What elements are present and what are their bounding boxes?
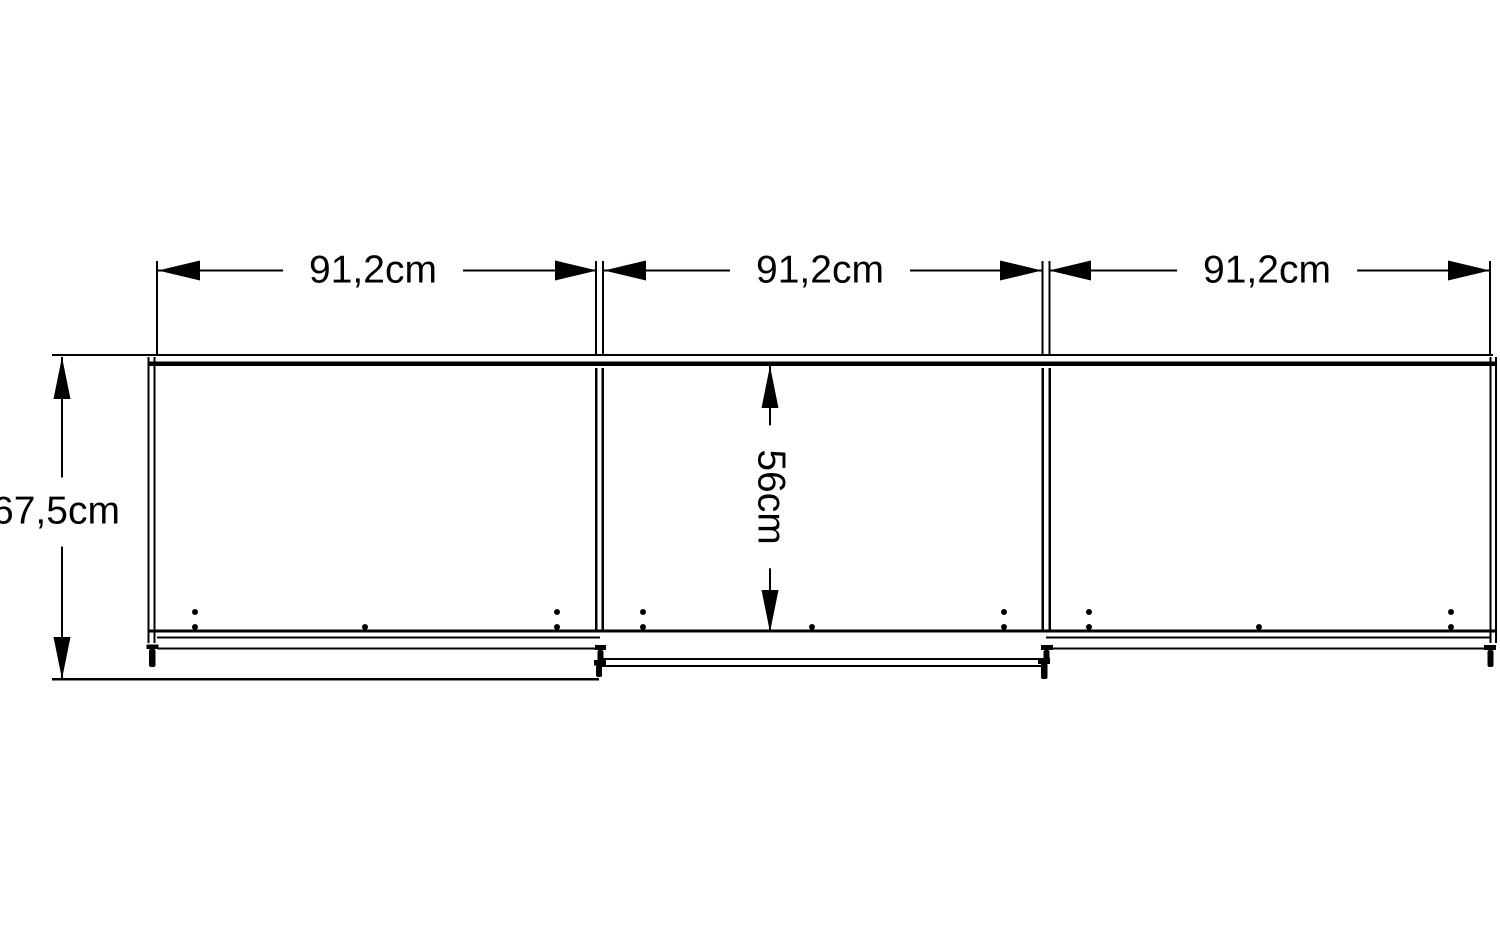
shelf-pin-hole bbox=[1448, 609, 1454, 615]
arrow-left-icon bbox=[604, 261, 646, 281]
partition-right bbox=[1042, 368, 1052, 632]
arrow-right-icon bbox=[1448, 261, 1490, 281]
left-door-track bbox=[147, 637, 607, 668]
arrow-up-icon bbox=[54, 357, 71, 399]
partition-left bbox=[595, 368, 604, 632]
front-rail-line bbox=[52, 678, 599, 681]
shelf-pin-holes bbox=[192, 609, 1454, 630]
shelf-pin-hole bbox=[192, 609, 198, 615]
arrow-right-icon bbox=[555, 261, 597, 281]
depth-label: 56cm bbox=[748, 425, 793, 568]
shelf-pin-hole bbox=[362, 624, 368, 630]
height-label: 67,5cm bbox=[0, 478, 126, 547]
carcass-bottom-edge bbox=[149, 630, 1497, 633]
shelf-pin-hole bbox=[1086, 624, 1092, 630]
shelf-pin-hole bbox=[192, 624, 198, 630]
shelf-pin-hole bbox=[1448, 624, 1454, 630]
arrow-right-icon bbox=[1000, 261, 1042, 281]
right-side-panel bbox=[1490, 357, 1498, 643]
width-label-2: 91,2cm bbox=[730, 249, 910, 294]
left-side-panel bbox=[148, 357, 156, 643]
shelf-pin-hole bbox=[640, 609, 646, 615]
arrow-left-icon bbox=[158, 261, 200, 281]
shelf-pin-hole bbox=[809, 624, 815, 630]
shelf-pin-hole bbox=[554, 609, 560, 615]
arrow-down-icon bbox=[54, 637, 71, 679]
middle-door-track bbox=[594, 658, 1050, 679]
shelf-pin-hole bbox=[1001, 609, 1007, 615]
width-label-3: 91,2cm bbox=[1177, 249, 1357, 294]
shelf-pin-hole bbox=[1001, 624, 1007, 630]
right-door-track bbox=[1041, 637, 1496, 668]
arrow-up-icon bbox=[762, 366, 779, 408]
shelf-pin-hole bbox=[1086, 609, 1092, 615]
shelf-pin-hole bbox=[1256, 624, 1262, 630]
diagram-canvas: 91,2cm 91,2cm 91,2cm 67,5cm 56cm bbox=[0, 0, 1500, 938]
shelf-pin-hole bbox=[640, 624, 646, 630]
carcass-top-edge bbox=[52, 354, 1497, 366]
width-label-1: 91,2cm bbox=[283, 249, 463, 294]
arrow-left-icon bbox=[1049, 261, 1091, 281]
arrow-down-icon bbox=[762, 590, 779, 632]
shelf-pin-hole bbox=[554, 624, 560, 630]
